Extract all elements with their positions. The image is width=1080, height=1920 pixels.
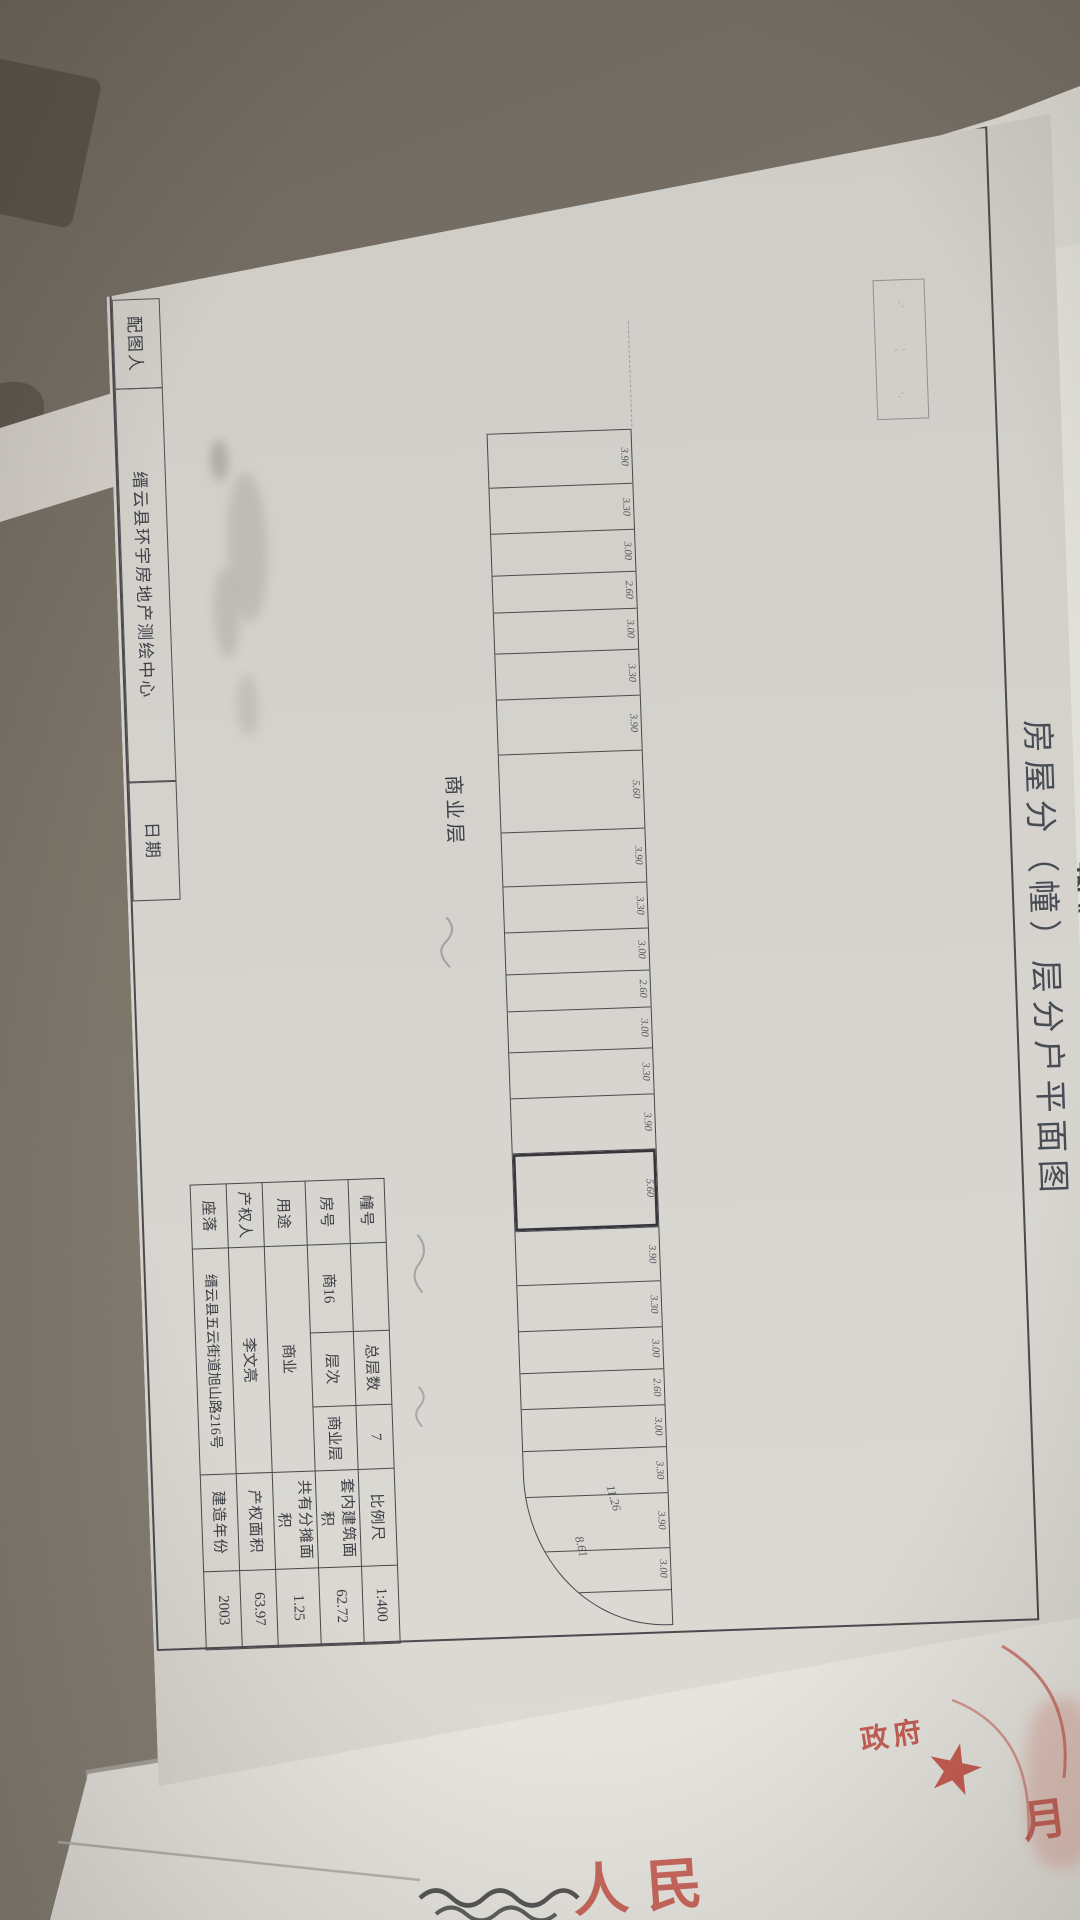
- floor-label: 商业层: [440, 775, 471, 848]
- info-label: 幢号: [348, 1178, 386, 1243]
- unit-width-dimension: 3.00: [652, 1406, 664, 1447]
- info-label: 总层数: [353, 1330, 392, 1405]
- unit-width-dimension: 3.90: [655, 1494, 668, 1548]
- floor-plan-unit: 3.30: [489, 484, 634, 535]
- info-label: 共有分摊面积: [272, 1471, 318, 1569]
- unit-width-dimension: 3.90: [641, 1095, 654, 1149]
- unit-width-dimension: 5.60: [629, 751, 643, 828]
- floor-plan-unit: 3.90: [488, 430, 633, 489]
- unit-width-dimension: 3.30: [653, 1448, 666, 1493]
- floor-plan-unit: 3.30: [503, 883, 648, 934]
- info-value: 63.97: [240, 1569, 279, 1648]
- unit-width-dimension: 3.00: [635, 929, 647, 970]
- unit-width-dimension: 3.00: [657, 1548, 669, 1589]
- unit-width-dimension: 3.30: [639, 1049, 652, 1094]
- floor-plan-unit: 3.00: [505, 929, 649, 976]
- floor-plan-unit: 5.60: [499, 750, 645, 833]
- floor-plan-unit: 3.90: [515, 1227, 660, 1286]
- unit-width-dimension: 3.00: [649, 1328, 661, 1369]
- unit-width-dimension: 3.90: [627, 696, 640, 750]
- info-label: 产权面积: [236, 1472, 275, 1570]
- unit-width-dimension: 3.90: [645, 1227, 658, 1281]
- info-value: 商16: [307, 1244, 353, 1333]
- unit-width-dimension: 3.90: [618, 430, 631, 484]
- floor-plan-unit: 3.30: [517, 1282, 662, 1333]
- floor-plan-unit: 2.60: [506, 971, 650, 1012]
- stamp-box: ·˙ ¦ ·.: [872, 278, 929, 420]
- floor-plan-unit: 3.00: [527, 1548, 671, 1595]
- info-label: 层次: [310, 1332, 356, 1407]
- info-label: 房号: [305, 1180, 350, 1245]
- seal-text-large: 人民: [569, 1837, 722, 1920]
- unit-width-dimension: 3.30: [625, 650, 638, 695]
- stamp-mark: ·.: [895, 391, 910, 399]
- unit-width-dimension: 3.30: [647, 1282, 660, 1327]
- info-table: 幢号总层数7比例尺1:400房号商16层次商业层套内建筑面积62.72用途商业共…: [190, 1178, 401, 1651]
- info-label: 座落: [190, 1184, 228, 1249]
- unit-width-dimension: 3.30: [633, 883, 646, 928]
- floor-plan-unit: 3.00: [491, 530, 635, 577]
- floor-plan-unit: 2.60: [520, 1369, 664, 1410]
- unit-width-dimension: 2.60: [650, 1370, 662, 1406]
- date-label-cell: 日期: [128, 780, 180, 902]
- floor-plan-unit: 3.90: [502, 829, 647, 888]
- info-label: 建造年份: [200, 1474, 239, 1572]
- unit-width-dimension: 2.60: [622, 572, 634, 608]
- floor-plan-unit: 3.00: [494, 608, 638, 655]
- plan-sheet: 房屋分（幢）层分户平面图 ·˙ ¦ ·. 3.903.303.002.603.0…: [101, 114, 1080, 1806]
- unit-width-dimension: 3.00: [624, 608, 636, 649]
- photo-stage: 法》、《中华人民共律法规，为对土地使权利，维 ★ 政府 人民 月 房屋分（幢）层…: [0, 0, 1080, 1920]
- floor-plan-unit: 2.60: [493, 572, 637, 613]
- unit-width-dimension: 3.30: [619, 484, 632, 529]
- stamp-mark: ·˙: [892, 300, 907, 309]
- info-value: 商业层: [313, 1405, 358, 1470]
- floor-plan-unit: 3.90: [525, 1494, 670, 1553]
- floor-plan-unit: 3.90: [511, 1095, 656, 1154]
- info-value: 7: [356, 1404, 394, 1469]
- sheet-title: 房屋分（幢）层分户平面图: [1016, 714, 1080, 1205]
- floor-plan-unit: 3.30: [523, 1448, 668, 1499]
- unit-width-dimension: 3.00: [621, 530, 633, 571]
- info-label: 比例尺: [358, 1468, 397, 1566]
- floor-plan-unit: 3.00: [508, 1007, 652, 1054]
- seal-text-month: 月: [1018, 1782, 1069, 1851]
- info-value: 1.25: [276, 1568, 322, 1647]
- info-label: 用途: [262, 1181, 307, 1246]
- floor-plan-unit: 3.30: [495, 650, 640, 701]
- unit-width-dimension: 2.60: [636, 971, 648, 1007]
- info-label: 套内建筑面积: [315, 1469, 361, 1567]
- info-label: 产权人: [226, 1183, 264, 1248]
- floor-plan-unit: 3.00: [522, 1406, 666, 1453]
- info-value: 1:400: [362, 1565, 401, 1644]
- info-value: 2003: [204, 1571, 243, 1650]
- floor-plan-unit: 5.60: [513, 1149, 659, 1232]
- floor-plan-unit: 3.30: [509, 1049, 654, 1100]
- unit-width-dimension: 3.90: [631, 829, 644, 883]
- info-value: 商业: [264, 1245, 315, 1472]
- unit-width-dimension: 3.00: [638, 1007, 650, 1048]
- stamp-mark: ¦: [893, 348, 908, 351]
- info-value: 62.72: [319, 1566, 365, 1645]
- unit-width-dimension: 5.60: [643, 1149, 657, 1226]
- floor-plan-unit: 3.90: [497, 696, 642, 755]
- info-value: [350, 1242, 389, 1331]
- maker-label-cell: 配图人: [112, 299, 163, 391]
- floor-plan-unit: 3.00: [519, 1328, 663, 1375]
- background-object: [0, 55, 102, 229]
